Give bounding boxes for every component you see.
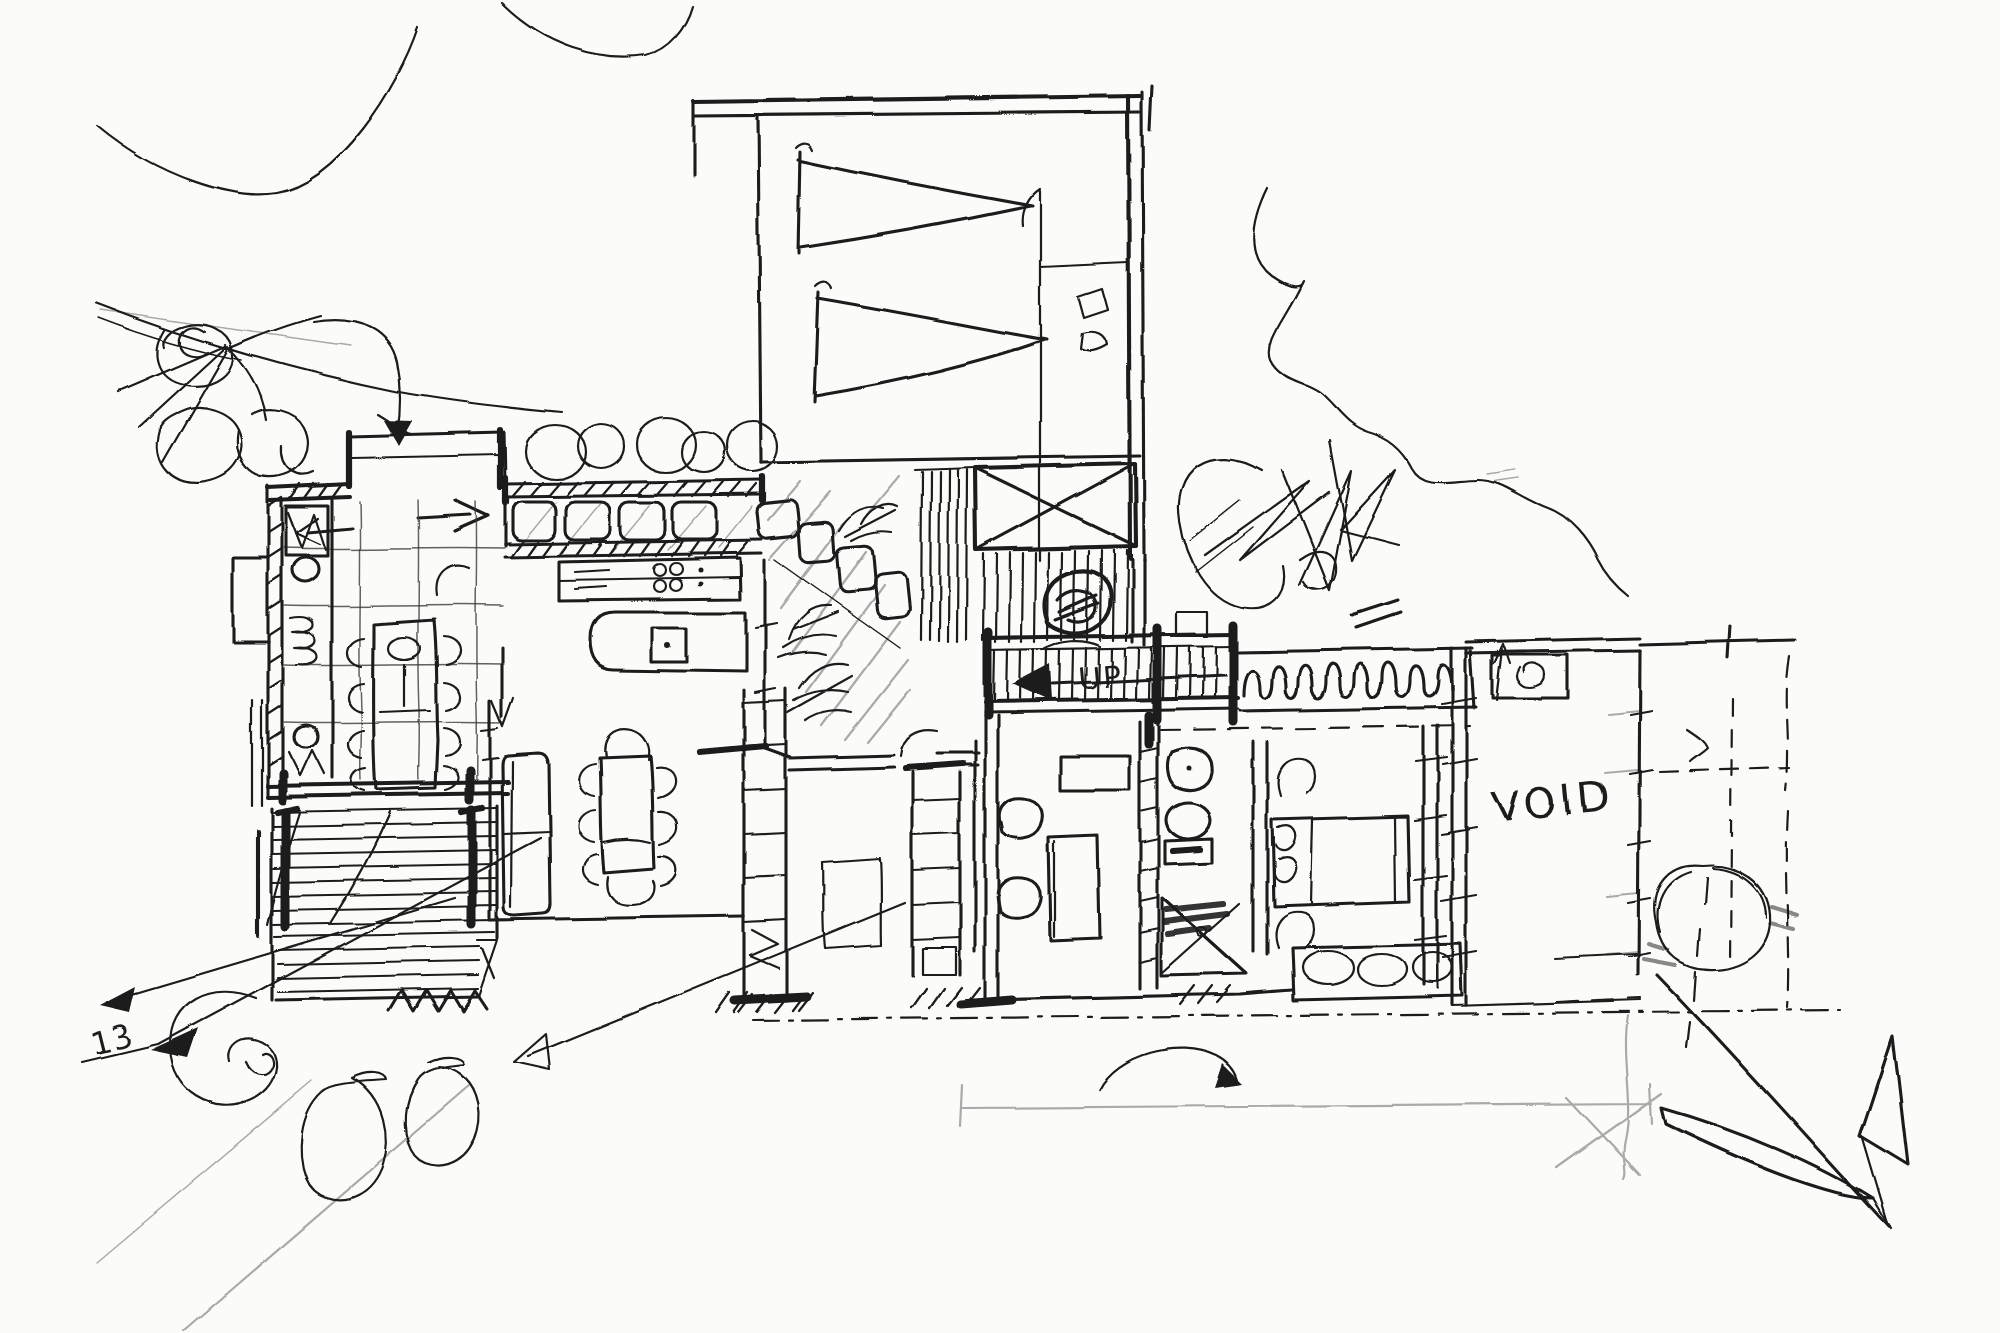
void-east-wall bbox=[1638, 650, 1640, 975]
floorplan-sketch: UP bbox=[0, 0, 2000, 1333]
sketch-page: UP bbox=[0, 0, 2000, 1333]
stair-direction-label: UP bbox=[1077, 658, 1124, 697]
garage-east-wall bbox=[1128, 96, 1130, 560]
